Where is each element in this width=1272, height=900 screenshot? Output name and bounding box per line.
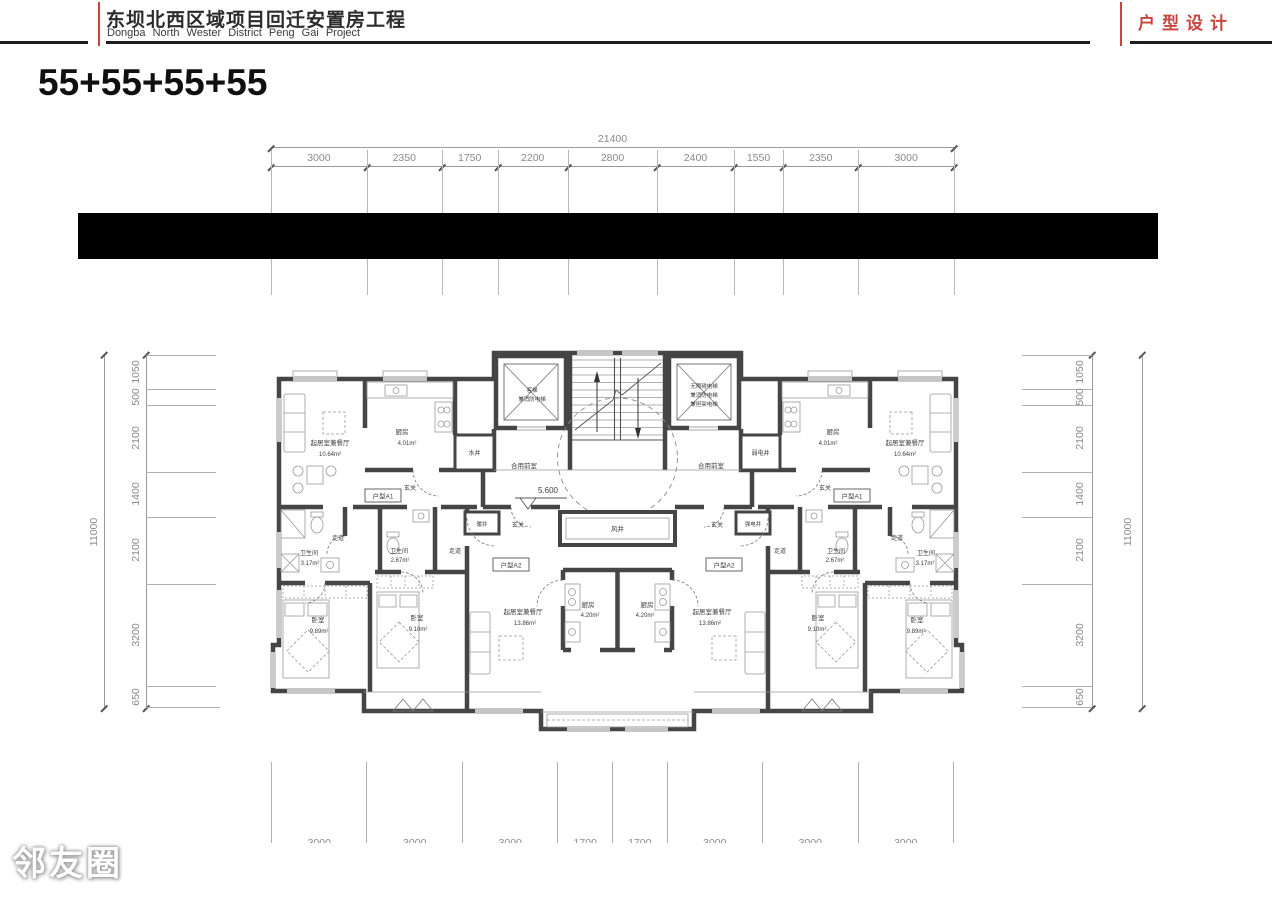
dim-seg: 2350 — [367, 152, 442, 166]
floor-plan: 5.600 客梯 兼消防电梯 无障碍电梯 兼消防电梯 兼担架电梯 合用前室 合用… — [265, 340, 965, 740]
room-label: 卫生间 — [390, 547, 408, 555]
header-rule-right — [1130, 41, 1272, 44]
dim-seg: 3000 — [762, 762, 857, 843]
svg-text:2.67m²: 2.67m² — [391, 558, 410, 564]
dim-seg: 3000 — [858, 762, 954, 843]
room-label: 厨房 — [827, 427, 840, 436]
room-label: 卫生间 — [300, 549, 318, 557]
room-label: 卫生间 — [917, 549, 935, 557]
top-dimension-seg-row: 3000 2350 1750 2200 2800 2400 1550 2350 … — [271, 152, 954, 167]
left-dimension-strip: 11000 1050 500 2100 1400 2100 3200 650 — [96, 355, 220, 708]
svg-text:4.01m²: 4.01m² — [398, 441, 417, 447]
entry-label: 玄关 — [711, 521, 723, 529]
svg-text:10.64m²: 10.64m² — [319, 452, 341, 458]
dim-line-total — [1142, 355, 1143, 708]
water-shaft-label: 水井 — [468, 449, 480, 457]
dim-seg: 1700 — [557, 762, 612, 843]
dim-seg: 2350 — [783, 152, 858, 166]
svg-text:兼消防电梯: 兼消防电梯 — [690, 391, 718, 399]
bottom-dimension-strip: 3000 3000 3000 1700 1700 3000 3000 3000 — [271, 762, 954, 843]
room-label: 卫生间 — [827, 547, 845, 555]
room-label: 厨房 — [396, 427, 409, 436]
room-label: 起居室兼餐厅 — [886, 438, 926, 447]
header-red-divider-left — [98, 2, 100, 46]
room-label: 卧室 — [312, 615, 326, 624]
dim-seg: 650 — [146, 686, 220, 708]
header-red-divider-right — [1120, 2, 1122, 46]
room-label: 卧室 — [911, 615, 925, 624]
dim-seg: 3000 — [366, 762, 461, 843]
unit-a2-label: 户型A2 — [714, 561, 735, 570]
dim-seg: 500 — [146, 389, 220, 405]
level-mark: 5.600 — [538, 486, 559, 495]
entry-label: 玄关 — [512, 521, 524, 529]
dim-seg: 2200 — [498, 152, 568, 166]
weak-shaft-label: 弱电井 — [751, 449, 769, 457]
watermark: 邻友圈 — [12, 836, 123, 885]
svg-text:9.89m²: 9.89m² — [310, 629, 329, 635]
svg-text:9.89m²: 9.89m² — [907, 629, 926, 635]
dim-seg: 2400 — [657, 152, 734, 166]
svg-text:3.17m²: 3.17m² — [301, 561, 320, 567]
strong-shaft-label: 强电井 — [745, 520, 762, 528]
dim-seg: 2100 — [146, 405, 220, 472]
heat-shaft-label: 暖井 — [476, 520, 488, 528]
dim-seg: 1700 — [612, 762, 667, 843]
svg-text:4.01m²: 4.01m² — [819, 441, 838, 447]
page-title: 55+55+55+55 — [38, 62, 267, 104]
dim-seg: 1550 — [734, 152, 783, 166]
room-label: 起居室兼餐厅 — [504, 607, 544, 616]
dim-seg: 3000 — [667, 762, 762, 843]
elevator-left-label: 客梯 — [526, 386, 538, 394]
elevator-right-label: 无障碍电梯 — [690, 382, 718, 390]
entry-label: 玄关 — [819, 484, 831, 492]
dim-line-total — [104, 355, 105, 708]
corridor-label: 走道 — [774, 547, 786, 555]
room-label: 厨房 — [582, 600, 595, 609]
dim-seg: 2100 — [1022, 517, 1092, 584]
svg-text:4.20m²: 4.20m² — [581, 613, 600, 619]
dim-seg: 1400 — [146, 472, 220, 517]
svg-text:4.20m²: 4.20m² — [636, 613, 655, 619]
room-label: 卧室 — [812, 613, 826, 622]
svg-text:兼担架电梯: 兼担架电梯 — [690, 400, 718, 408]
dim-total: 11000 — [1122, 517, 1134, 545]
unit-a1-label: 户型A1 — [842, 492, 863, 501]
corridor-label: 走道 — [891, 534, 903, 542]
lobby-label: 合用前室 — [511, 461, 538, 470]
svg-text:兼消防电梯: 兼消防电梯 — [518, 395, 546, 403]
dim-seg: 500 — [1022, 389, 1092, 405]
dim-seg: 3200 — [1022, 584, 1092, 686]
svg-text:2.67m²: 2.67m² — [826, 558, 845, 564]
header-rule-main — [106, 41, 1090, 44]
page-tag: 户型设计 — [1138, 9, 1234, 34]
dim-seg: 3000 — [858, 152, 954, 166]
dim-seg: 1050 — [146, 355, 220, 389]
dim-seg: 2100 — [146, 517, 220, 584]
dim-seg: 3000 — [271, 152, 367, 166]
svg-text:13.86m²: 13.86m² — [514, 621, 536, 627]
corridor-label: 走道 — [332, 534, 344, 542]
dim-seg: 2800 — [568, 152, 657, 166]
dim-line-segments — [1092, 355, 1093, 708]
dim-total: 21400 — [271, 133, 954, 147]
dim-seg: 3000 — [271, 762, 366, 843]
svg-text:3.17m²: 3.17m² — [916, 561, 935, 567]
dim-seg: 650 — [1022, 686, 1092, 708]
wind-shaft-label: 风井 — [611, 524, 625, 533]
lobby-label: 合用前室 — [698, 461, 725, 470]
dim-seg: 1050 — [1022, 355, 1092, 389]
room-label: 起居室兼餐厅 — [311, 438, 351, 447]
svg-text:9.10m²: 9.10m² — [808, 627, 827, 633]
dim-seg: 1400 — [1022, 472, 1092, 517]
room-label: 起居室兼餐厅 — [693, 607, 733, 616]
svg-text:10.64m²: 10.64m² — [894, 452, 916, 458]
dim-seg: 3000 — [462, 762, 557, 843]
right-dimension-strip: 11000 1050 500 2100 1400 2100 3200 650 — [1022, 355, 1146, 708]
unit-a1-label: 户型A1 — [373, 492, 394, 501]
top-dimension-strip: 21400 3000 2350 1750 2200 2800 2400 1550… — [271, 133, 954, 167]
svg-text:9.10m²: 9.10m² — [409, 627, 428, 633]
project-title-en: Dongba North Wester District Peng Gai Pr… — [107, 27, 360, 39]
dim-seg: 2100 — [1022, 405, 1092, 472]
header-rule-left — [0, 41, 88, 44]
entry-label: 玄关 — [404, 484, 416, 492]
room-label: 卧室 — [411, 613, 425, 622]
dim-seg: 3200 — [146, 584, 220, 686]
corridor-label: 走道 — [449, 547, 461, 555]
unit-a2-label: 户型A2 — [501, 561, 522, 570]
top-dimension-total-row: 21400 — [271, 133, 954, 148]
dim-seg: 1750 — [442, 152, 498, 166]
dim-total: 11000 — [88, 517, 100, 545]
site-section-bar — [78, 213, 1158, 259]
room-label: 厨房 — [641, 600, 654, 609]
svg-text:13.86m²: 13.86m² — [699, 621, 721, 627]
